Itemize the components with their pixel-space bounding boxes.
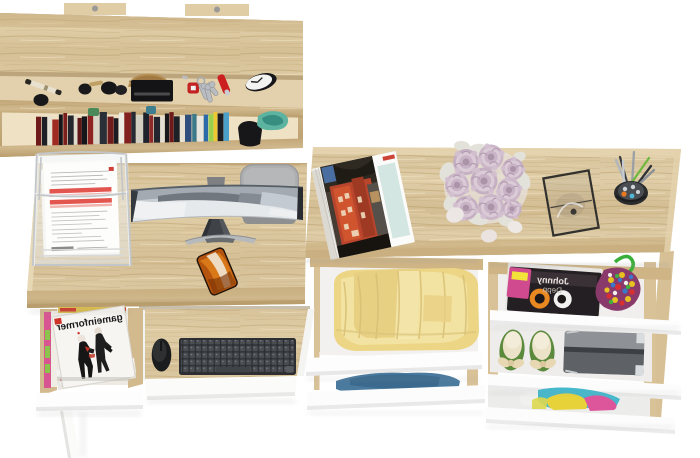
svg-text:Depp: Depp <box>542 285 562 295</box>
